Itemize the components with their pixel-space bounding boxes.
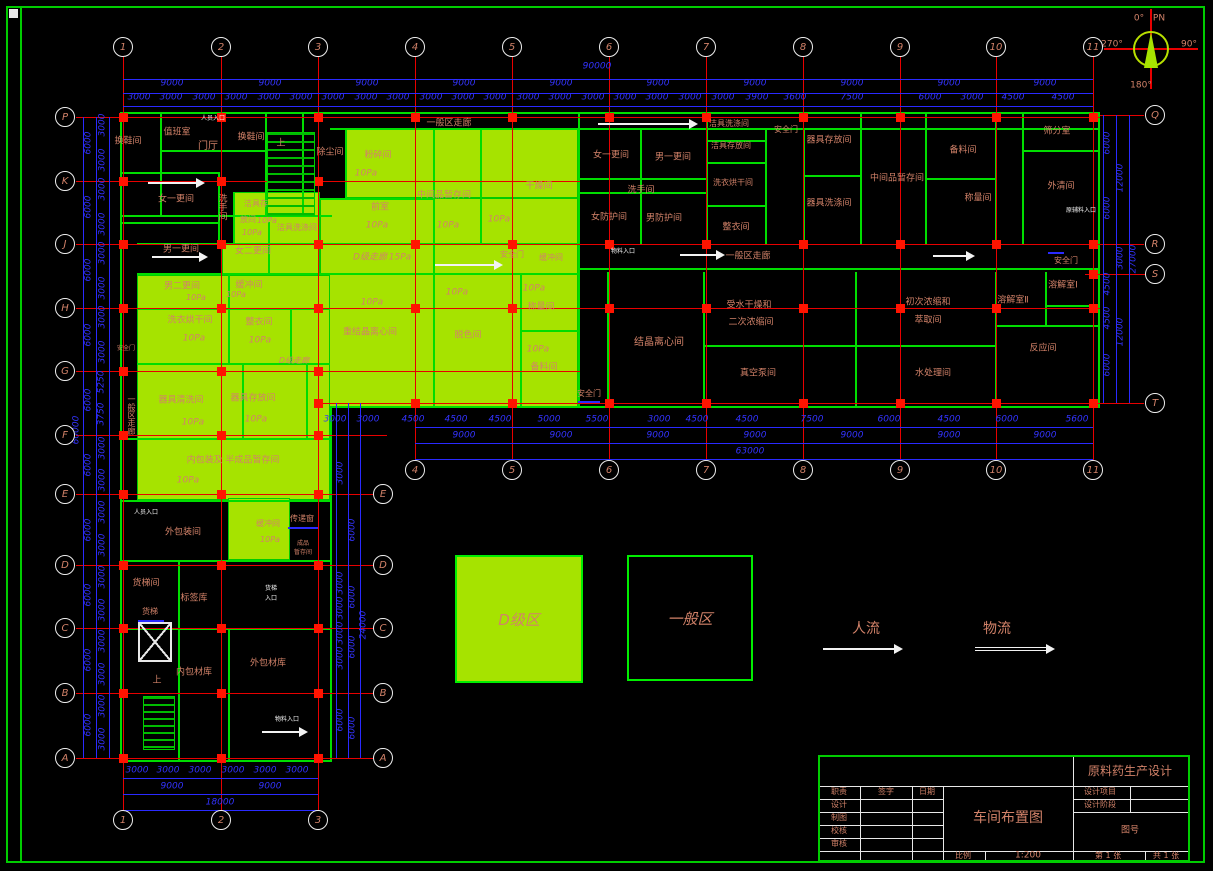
wall	[1022, 150, 1098, 152]
dim-label: 3900	[746, 94, 769, 103]
tb-scale-value: 1:200	[1015, 852, 1041, 861]
dim-label: 3000	[222, 767, 245, 776]
room-label: 中间品暂存间	[417, 192, 471, 201]
room-label: 器具存放间	[230, 395, 275, 404]
room-label: 洗衣烘干间	[167, 317, 212, 326]
room-label: 干燥间	[525, 183, 552, 192]
dim-label: 5000	[538, 416, 561, 425]
room-label: 男防护间	[646, 215, 682, 224]
dim-label: 3000	[99, 114, 108, 137]
room-label: 传递窗	[290, 515, 314, 523]
dim-label: 4500	[1052, 94, 1075, 103]
grid-line	[996, 56, 997, 112]
dim-label: 3000	[126, 767, 149, 776]
grid-bubble: 7	[696, 460, 716, 480]
room-label: 一般区走廊	[127, 395, 135, 435]
flow-arrow	[680, 252, 725, 260]
grid-column-marker	[799, 240, 808, 249]
dim-label: 3600	[784, 94, 807, 103]
room-label: 15Pa	[389, 254, 411, 263]
room-label: 整衣间	[245, 319, 272, 328]
grid-line	[1100, 115, 1144, 116]
tb-draft: 制图	[831, 814, 847, 822]
dim-label: 3000	[712, 94, 735, 103]
room-label: 标签库	[180, 595, 207, 604]
room-label: 女一更间	[158, 196, 194, 205]
room-label: 真空泵间	[740, 370, 776, 379]
dim-label: 9000	[841, 80, 864, 89]
room-label: 10Pa	[488, 216, 510, 225]
dim-label: 6000	[85, 519, 94, 542]
grid-line	[332, 565, 372, 566]
dim-label: 63000	[736, 448, 765, 457]
dim-label: 9000	[744, 432, 767, 441]
room-label: 前室	[371, 204, 389, 213]
tb-design-project: 设计项目	[1084, 788, 1116, 796]
grid-line	[512, 56, 513, 112]
room-label: 10Pa	[523, 285, 545, 294]
grid-line	[706, 56, 707, 112]
dim-label: 27000	[1130, 245, 1139, 274]
grid-bubble: S	[1145, 264, 1165, 284]
tb-design: 设计	[831, 801, 847, 809]
grid-bubble: A	[55, 748, 75, 768]
grid-bubble: C	[373, 618, 393, 638]
freight-elevator-icon	[138, 622, 172, 662]
dim-label: 6000	[85, 259, 94, 282]
grid-column-marker	[119, 240, 128, 249]
grid-bubble: 11	[1083, 460, 1103, 480]
dim-label: 3000	[99, 341, 108, 364]
legend-people-flow-label: 人流	[852, 618, 880, 638]
grid-bubble: Q	[1145, 105, 1165, 125]
room-label: 一般区走廊	[725, 253, 770, 262]
dim-label: 90000	[583, 63, 612, 72]
grid-bubble: B	[55, 683, 75, 703]
grid-column-marker	[119, 624, 128, 633]
grid-column-marker	[896, 240, 905, 249]
wall	[480, 130, 482, 245]
grid-bubble: 3	[308, 810, 328, 830]
flow-arrow	[823, 646, 903, 654]
grid-line	[803, 56, 804, 112]
grid-line	[123, 56, 124, 112]
tb-audit: 审核	[831, 840, 847, 848]
wall	[122, 500, 332, 502]
staircase	[143, 696, 175, 750]
dim-label: 6000	[1104, 132, 1113, 155]
dimension-line	[123, 106, 1093, 107]
grid-column-marker	[1089, 270, 1098, 279]
room-label: 溶解室Ⅰ	[1048, 282, 1078, 291]
room-label: 缓冲间	[256, 520, 280, 528]
dim-label: 9000	[161, 783, 184, 792]
dim-label: 4500	[938, 416, 961, 425]
room-label: 安全门	[117, 346, 135, 352]
room-label: 粉碎间	[364, 152, 391, 161]
dim-label: 9000	[550, 80, 573, 89]
dim-label: 3000	[99, 277, 108, 300]
grid-line	[1093, 410, 1094, 460]
grid-bubble: 6	[599, 37, 619, 57]
room-label: 安全门	[774, 126, 798, 134]
room-label: 安全门	[500, 251, 524, 259]
grid-column-marker	[799, 304, 808, 313]
dim-label: 7500	[801, 416, 824, 425]
grid-line	[76, 758, 115, 759]
room-label: 结晶离心间	[634, 338, 684, 348]
dim-label: 3000	[258, 94, 281, 103]
dim-label: 6000	[85, 584, 94, 607]
dimension-line	[578, 401, 600, 403]
dim-label: 6000	[349, 717, 358, 740]
tb-role: 职责	[831, 788, 847, 796]
wall	[122, 172, 220, 174]
dim-label: 3000	[99, 663, 108, 686]
tb-drawing-title: 车间布置图	[973, 811, 1043, 825]
grid-bubble: 1	[113, 810, 133, 830]
grid-column-marker	[314, 177, 323, 186]
room-label: 货梯	[142, 608, 158, 616]
wall	[925, 178, 995, 180]
dim-label: 3000	[99, 599, 108, 622]
grid-bubble: C	[55, 618, 75, 638]
grid-column-marker	[896, 113, 905, 122]
grid-bubble: J	[55, 234, 75, 254]
flow-arrow	[262, 729, 308, 737]
grid-column-marker	[992, 113, 1001, 122]
dim-label: 3000	[646, 94, 669, 103]
grid-column-marker	[508, 304, 517, 313]
dim-label: 3000	[357, 416, 380, 425]
room-label: 10Pa	[355, 170, 377, 179]
dim-label: 3000	[99, 469, 108, 492]
dimension-line	[1048, 252, 1064, 254]
dimension-line	[415, 427, 1093, 428]
room-label: 器具清洗间	[158, 397, 203, 406]
dim-label: 4500	[1104, 307, 1113, 330]
wall	[703, 272, 705, 408]
dim-label: 3750	[98, 403, 107, 426]
room-label: 整衣间	[722, 224, 749, 233]
grid-bubble: H	[55, 298, 75, 318]
room-label: 受水干燥和	[726, 302, 771, 311]
grid-column-marker	[605, 399, 614, 408]
room-label: 器具洗涤间	[806, 200, 851, 209]
dim-label: 4500	[686, 416, 709, 425]
room-label: 洁具洗涤间	[277, 224, 317, 232]
room-label: PN	[1153, 15, 1165, 24]
grid-bubble: E	[373, 484, 393, 504]
room-label: 上	[276, 140, 285, 149]
room-label: 物料入口	[611, 249, 635, 255]
dim-label: 5500	[586, 416, 609, 425]
grid-column-marker	[217, 431, 226, 440]
room-label: 值班室	[163, 129, 190, 138]
dim-label: 3000	[99, 695, 108, 718]
room-label: 10Pa	[249, 337, 271, 346]
grid-column-marker	[992, 240, 1001, 249]
dim-label: 3000	[961, 94, 984, 103]
grid-line	[900, 112, 901, 410]
grid-column-marker	[314, 367, 323, 376]
wall	[703, 345, 995, 347]
grid-column-marker	[217, 177, 226, 186]
grid-column-marker	[702, 240, 711, 249]
d-class-zone	[228, 498, 290, 560]
grid-column-marker	[605, 304, 614, 313]
room-label: 女二更间	[235, 248, 271, 257]
wall	[122, 560, 332, 562]
wall	[345, 130, 347, 198]
grid-column-marker	[411, 304, 420, 313]
grid-bubble: 1	[113, 37, 133, 57]
grid-bubble: 7	[696, 37, 716, 57]
room-label: 10Pa	[186, 294, 206, 302]
dim-label: 3000	[648, 416, 671, 425]
room-label: 换鞋间	[237, 134, 264, 143]
dim-label: 6000	[85, 132, 94, 155]
grid-column-marker	[411, 113, 420, 122]
grid-column-marker	[217, 367, 226, 376]
grid-column-marker	[508, 113, 517, 122]
room-label: 器具存放间	[806, 137, 851, 146]
dimension-line	[360, 403, 361, 758]
grid-bubble: D	[55, 555, 75, 575]
room-label: D级走廊	[353, 254, 387, 263]
room-label: 洗手间	[217, 194, 226, 221]
room-label: 人员入口	[201, 116, 225, 122]
room-label: 溶解室Ⅱ	[997, 297, 1028, 306]
room-label: 10Pa	[260, 536, 280, 544]
grid-column-marker	[314, 490, 323, 499]
grid-column-marker	[119, 113, 128, 122]
room-label: 人员入口	[134, 510, 158, 516]
wall	[122, 222, 220, 224]
grid-bubble: 3	[308, 37, 328, 57]
grid-column-marker	[119, 177, 128, 186]
room-label: 备料间	[949, 147, 976, 156]
grid-column-marker	[217, 490, 226, 499]
dim-label: 3000	[324, 416, 347, 425]
tb-fig-no: 图号	[1121, 827, 1139, 836]
wall	[330, 406, 332, 762]
wall	[178, 560, 180, 762]
tb-date: 日期	[919, 788, 935, 796]
wall	[120, 760, 332, 762]
room-label: D级走廊	[279, 357, 309, 365]
dim-label: 3000	[517, 94, 540, 103]
grid-column-marker	[1089, 304, 1098, 313]
tb-sheet-no: 第 1 张	[1095, 852, 1121, 860]
room-label: 男二更间	[164, 283, 200, 292]
dim-label: 24000	[360, 611, 369, 640]
dim-label: 3000	[1117, 247, 1126, 270]
room-label: 上	[152, 677, 161, 686]
legend-general-zone-box: 一般区	[627, 555, 753, 681]
dim-label: 9000	[259, 783, 282, 792]
grid-column-marker	[217, 561, 226, 570]
grid-bubble: 5	[502, 37, 522, 57]
grid-column-marker	[314, 304, 323, 313]
dim-label: 6000	[85, 196, 94, 219]
legend-general-zone-label: 一般区	[667, 608, 712, 629]
room-label: 原辅料入口	[1066, 208, 1096, 214]
dim-label: 6000	[85, 454, 94, 477]
grid-column-marker	[119, 367, 128, 376]
grid-column-marker	[992, 399, 1001, 408]
dim-label: 3000	[99, 501, 108, 524]
grid-bubble: 10	[986, 460, 1006, 480]
grid-bubble: 9	[890, 37, 910, 57]
room-label: 洗衣烘干间	[713, 179, 753, 187]
dim-label: 9000	[938, 80, 961, 89]
staircase	[267, 132, 315, 216]
room-label: 内包装及 半成品暂存间	[187, 457, 280, 466]
dim-label: 3000	[582, 94, 605, 103]
grid-column-marker	[411, 240, 420, 249]
grid-column-marker	[1089, 240, 1098, 249]
dim-label: 6000	[878, 416, 901, 425]
grid-bubble: 8	[793, 37, 813, 57]
grid-column-marker	[314, 689, 323, 698]
dimension-line	[109, 117, 110, 758]
grid-column-marker	[799, 113, 808, 122]
dim-label: 3000	[549, 94, 572, 103]
room-label: 男一更间	[655, 154, 691, 163]
grid-column-marker	[896, 304, 905, 313]
grid-bubble: T	[1145, 393, 1165, 413]
room-label: 10Pa	[182, 419, 204, 428]
grid-column-marker	[217, 689, 226, 698]
dim-label: 5600	[1066, 416, 1089, 425]
tb-sign: 签字	[878, 788, 894, 796]
room-label: 外包装间	[165, 529, 201, 538]
tb-sheet-total: 共 1 张	[1153, 852, 1179, 860]
room-label: 物料入口	[275, 717, 299, 723]
grid-line	[1093, 112, 1094, 410]
room-label: 门厅	[198, 142, 218, 152]
grid-bubble: 11	[1083, 37, 1103, 57]
grid-line	[415, 56, 416, 112]
room-label: 安全门	[1054, 257, 1078, 265]
dim-label: 3000	[679, 94, 702, 103]
wall	[578, 112, 580, 408]
room-label: 女一更间	[593, 152, 629, 161]
wall	[122, 438, 332, 440]
room-label: 放间	[240, 216, 256, 224]
grid-line	[332, 693, 372, 694]
room-label: 萃取间	[914, 317, 941, 326]
grid-column-marker	[508, 399, 517, 408]
room-label: 缓冲间	[539, 254, 563, 262]
wall	[306, 363, 308, 440]
dim-label: 12000	[1117, 164, 1126, 193]
room-label: 脱色间	[454, 332, 481, 341]
grid-line	[706, 112, 707, 410]
grid-line	[123, 762, 124, 812]
dim-label: 6000	[1104, 197, 1113, 220]
wall	[706, 205, 765, 207]
room-label: 洗手间	[627, 187, 654, 196]
room-label: 称量间	[527, 304, 554, 313]
dim-label: 3000	[290, 94, 313, 103]
grid-column-marker	[119, 561, 128, 570]
grid-column-marker	[799, 399, 808, 408]
room-label: 0°	[1134, 15, 1144, 24]
grid-column-marker	[217, 754, 226, 763]
dim-label: 4500	[445, 416, 468, 425]
room-label: 10Pa	[361, 299, 383, 308]
grid-bubble: 6	[599, 460, 619, 480]
room-label: 暂存间	[294, 550, 312, 556]
tb-scale-label: 比例	[955, 852, 971, 860]
dim-label: 3000	[337, 572, 346, 595]
wall	[1022, 112, 1024, 244]
room-label: 90°	[1181, 41, 1197, 50]
dim-label: 3000	[99, 242, 108, 265]
tb-check: 校核	[831, 827, 847, 835]
wall	[855, 272, 857, 408]
grid-line	[221, 56, 222, 112]
dim-label: 9000	[550, 432, 573, 441]
grid-column-marker	[119, 754, 128, 763]
dim-label: 5250	[98, 371, 107, 394]
grid-bubble: G	[55, 361, 75, 381]
room-label: 洁具存放间	[711, 142, 751, 150]
dim-label: 3000	[420, 94, 443, 103]
grid-line	[900, 56, 901, 112]
dim-label: 3000	[99, 630, 108, 653]
dim-label: 9000	[259, 80, 282, 89]
room-label: 二次浓缩间	[728, 319, 773, 328]
dim-label: 3000	[99, 534, 108, 557]
grid-line	[318, 762, 319, 812]
grid-column-marker	[119, 304, 128, 313]
dim-label: 3000	[99, 437, 108, 460]
grid-column-marker	[314, 113, 323, 122]
wall	[706, 162, 765, 164]
grid-line	[1100, 403, 1144, 404]
room-label: 内包材库	[176, 669, 212, 678]
grid-column-marker	[314, 399, 323, 408]
grid-column-marker	[896, 399, 905, 408]
grid-bubble: B	[373, 683, 393, 703]
frame-corner-mark	[9, 9, 18, 18]
room-label: 称量间	[964, 195, 991, 204]
grid-bubble: F	[55, 425, 75, 445]
room-label: 反应间	[1029, 345, 1056, 354]
flow-arrow	[598, 121, 698, 129]
flow-arrow	[152, 254, 208, 262]
room-label: 10Pa	[446, 289, 468, 298]
room-label: 女防护间	[591, 214, 627, 223]
grid-bubble: 10	[986, 37, 1006, 57]
dim-label: 3000	[99, 149, 108, 172]
grid-line	[115, 435, 387, 436]
grid-column-marker	[314, 561, 323, 570]
wall	[520, 273, 522, 408]
grid-line	[332, 494, 372, 495]
dim-label: 3000	[99, 213, 108, 236]
cad-canvas: D级区 一般区 人流 物流 12345678910114567891011123…	[0, 0, 1213, 871]
wall	[803, 175, 860, 177]
dim-label: 6000	[1104, 354, 1113, 377]
dim-label: 3000	[157, 767, 180, 776]
dim-label: 3000	[189, 767, 212, 776]
grid-bubble: 4	[405, 460, 425, 480]
dimension-line	[123, 794, 318, 795]
